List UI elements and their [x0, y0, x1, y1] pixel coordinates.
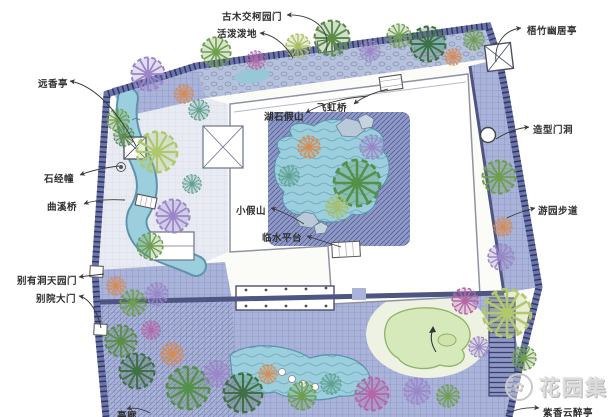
- pond-island: [438, 334, 456, 346]
- label-bieyou-dongtian-gate: 别有洞天园门: [17, 273, 77, 287]
- label-hushi-rockery: 湖石假山: [264, 109, 304, 123]
- flower-icon: ✿: [505, 373, 533, 401]
- watermark-text: 花园集: [539, 372, 608, 402]
- label-tinglang: 亭廊: [117, 408, 137, 417]
- side-hall: [203, 126, 243, 168]
- label-yuanxiang-pavilion: 远香亭: [38, 76, 68, 90]
- garden-plan-drawing: [0, 0, 616, 417]
- label-gumu-jiaoke-gate: 古木交柯园门: [222, 9, 282, 23]
- waterside-platform: [332, 241, 361, 257]
- wuzhu-pavilion: [485, 43, 514, 72]
- moon-gate: [481, 128, 496, 143]
- bottom-wall-gap: [352, 288, 366, 300]
- label-feihong-bridge: 飞虹桥: [317, 100, 347, 114]
- label-linshui-platform: 临水平台: [262, 230, 302, 244]
- garden-plan-page: 古木交柯园门 活泼泼地 梧竹幽居亭 远香亭 湖石假山 飞虹桥 造型门洞 石经幢 …: [0, 0, 616, 417]
- feihong-bridge: [379, 75, 403, 92]
- label-wuzhu-youju-pavilion: 梧竹幽居亭: [527, 23, 577, 37]
- label-zaoxing-doorway: 造型门洞: [533, 122, 573, 136]
- label-huopo-podi: 活泼泼地: [217, 26, 257, 40]
- label-shijing-pillar: 石经幢: [44, 171, 74, 185]
- watermark: ✿ 花园集: [505, 372, 608, 402]
- label-xiao-rockery: 小假山: [236, 203, 266, 217]
- label-quxi-bridge: 曲溪桥: [47, 199, 77, 213]
- label-bieyuan-gate: 别院大门: [36, 291, 76, 305]
- label-zixiang-pavilion: 紫香云醉亭: [543, 405, 593, 417]
- label-youyuan-path: 游园步道: [538, 203, 578, 217]
